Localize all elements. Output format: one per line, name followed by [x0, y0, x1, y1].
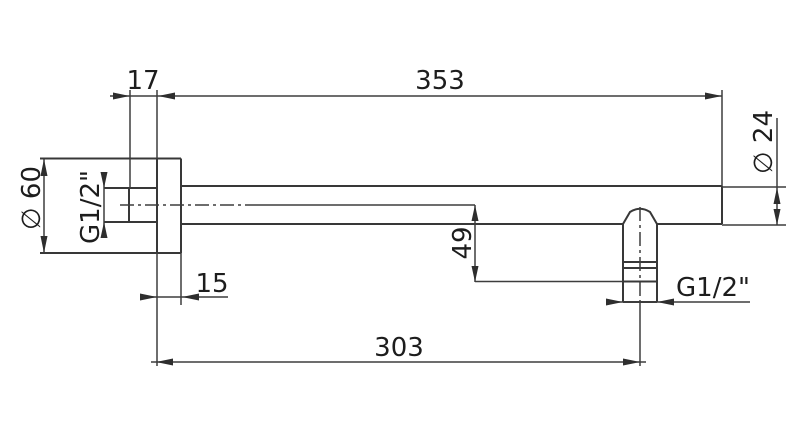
- arrow-d24-bottom: [774, 209, 781, 225]
- wall-flange-outline: [40, 159, 181, 254]
- arrow-outlet-thread-right: [657, 299, 674, 306]
- label-center-distance: 303: [374, 333, 424, 363]
- label-flange-thickness: 15: [195, 269, 228, 299]
- arrow-outlet-thread-left: [606, 299, 623, 306]
- label-tube-diameter: ∅ 24: [749, 110, 779, 174]
- arrow-d60-bottom: [41, 236, 48, 253]
- arrow-303-right: [623, 359, 640, 366]
- label-flange-diameter: ∅ 60: [17, 166, 47, 230]
- arrow-49-top: [472, 205, 479, 221]
- arrow-49-bottom: [472, 266, 479, 282]
- technical-drawing-page: 17 353 15 303 G1/2" ∅ 60 G1/2" 49 ∅ 24: [0, 0, 800, 442]
- label-wall-offset: 17: [126, 66, 159, 96]
- label-arm-length: 353: [415, 66, 465, 96]
- arrow-d24-top: [774, 188, 781, 205]
- arrow-353-right: [705, 93, 722, 100]
- label-wall-thread: G1/2": [76, 170, 106, 244]
- label-drop-height: 49: [448, 226, 478, 259]
- arrow-15-left: [140, 294, 157, 301]
- arrow-17-right-353-left: [158, 93, 175, 100]
- shower-arm-technical-drawing: 17 353 15 303 G1/2" ∅ 60 G1/2" 49 ∅ 24: [0, 0, 800, 442]
- arrow-303-left: [156, 359, 173, 366]
- label-outlet-thread: G1/2": [676, 273, 750, 303]
